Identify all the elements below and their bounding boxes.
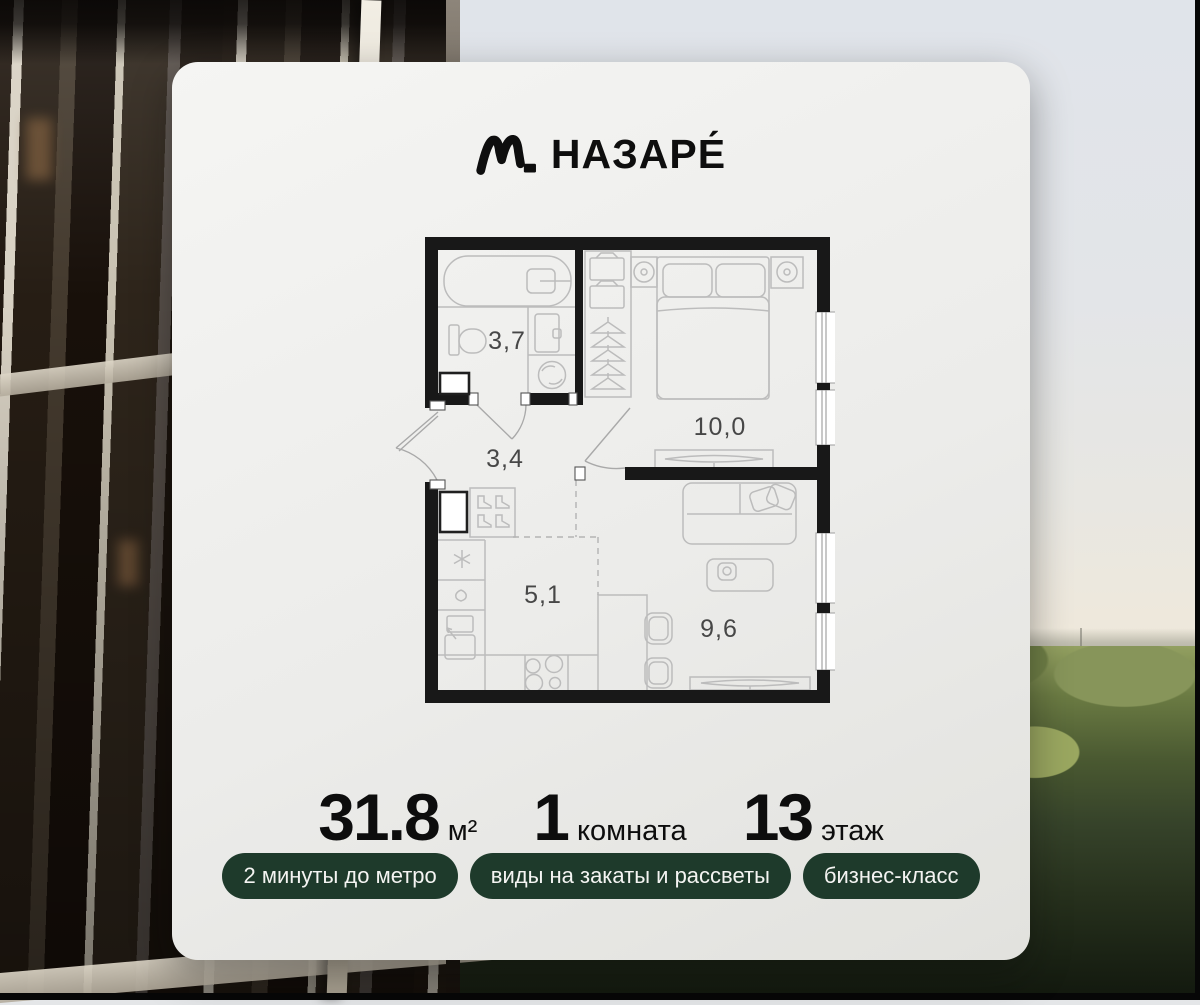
room-label-hallway: 3,4	[486, 445, 524, 473]
photo-edge-right	[1195, 0, 1200, 1000]
room-label-bedroom: 10,0	[694, 413, 747, 441]
badge-class: бизнес-класс	[803, 853, 980, 899]
listing-card[interactable]: НАЗАРЕ́	[172, 62, 1030, 960]
room-label-kitchen: 5,1	[524, 581, 562, 609]
stat-rooms: 1 комната	[533, 784, 686, 850]
stat-area: 31.8 м²	[318, 784, 477, 850]
window-glow	[118, 540, 138, 586]
stat-rooms-unit: комната	[577, 815, 687, 848]
badge-views: виды на закаты и рассветы	[470, 853, 791, 899]
badge-metro: 2 минуты до метро	[222, 853, 457, 899]
door-jambs	[430, 393, 585, 489]
floor-plan: 3,7 3,4 10,0 5,1 9,6	[375, 237, 835, 703]
photo-edge-bottom	[0, 993, 1200, 1000]
badges-row: 2 минуты до метро виды на закаты и рассв…	[172, 853, 1030, 899]
stat-area-value: 31.8	[318, 784, 438, 850]
stat-floor: 13 этаж	[743, 784, 884, 850]
room-label-bathroom: 3,7	[488, 327, 526, 355]
window-glow	[26, 118, 52, 180]
stat-area-unit: м²	[448, 815, 478, 848]
brand-name: НАЗАРЕ́	[551, 134, 726, 175]
stat-floor-unit: этаж	[821, 815, 884, 848]
room-label-living: 9,6	[700, 615, 738, 643]
stat-floor-value: 13	[743, 784, 812, 850]
stats-row: 31.8 м² 1 комната 13 этаж	[172, 784, 1030, 850]
brand-mark-m-icon	[476, 135, 538, 175]
stat-rooms-value: 1	[533, 784, 568, 850]
kitchen-zone-boundary	[513, 480, 598, 595]
brand-logo: НАЗАРЕ́	[172, 134, 1030, 175]
